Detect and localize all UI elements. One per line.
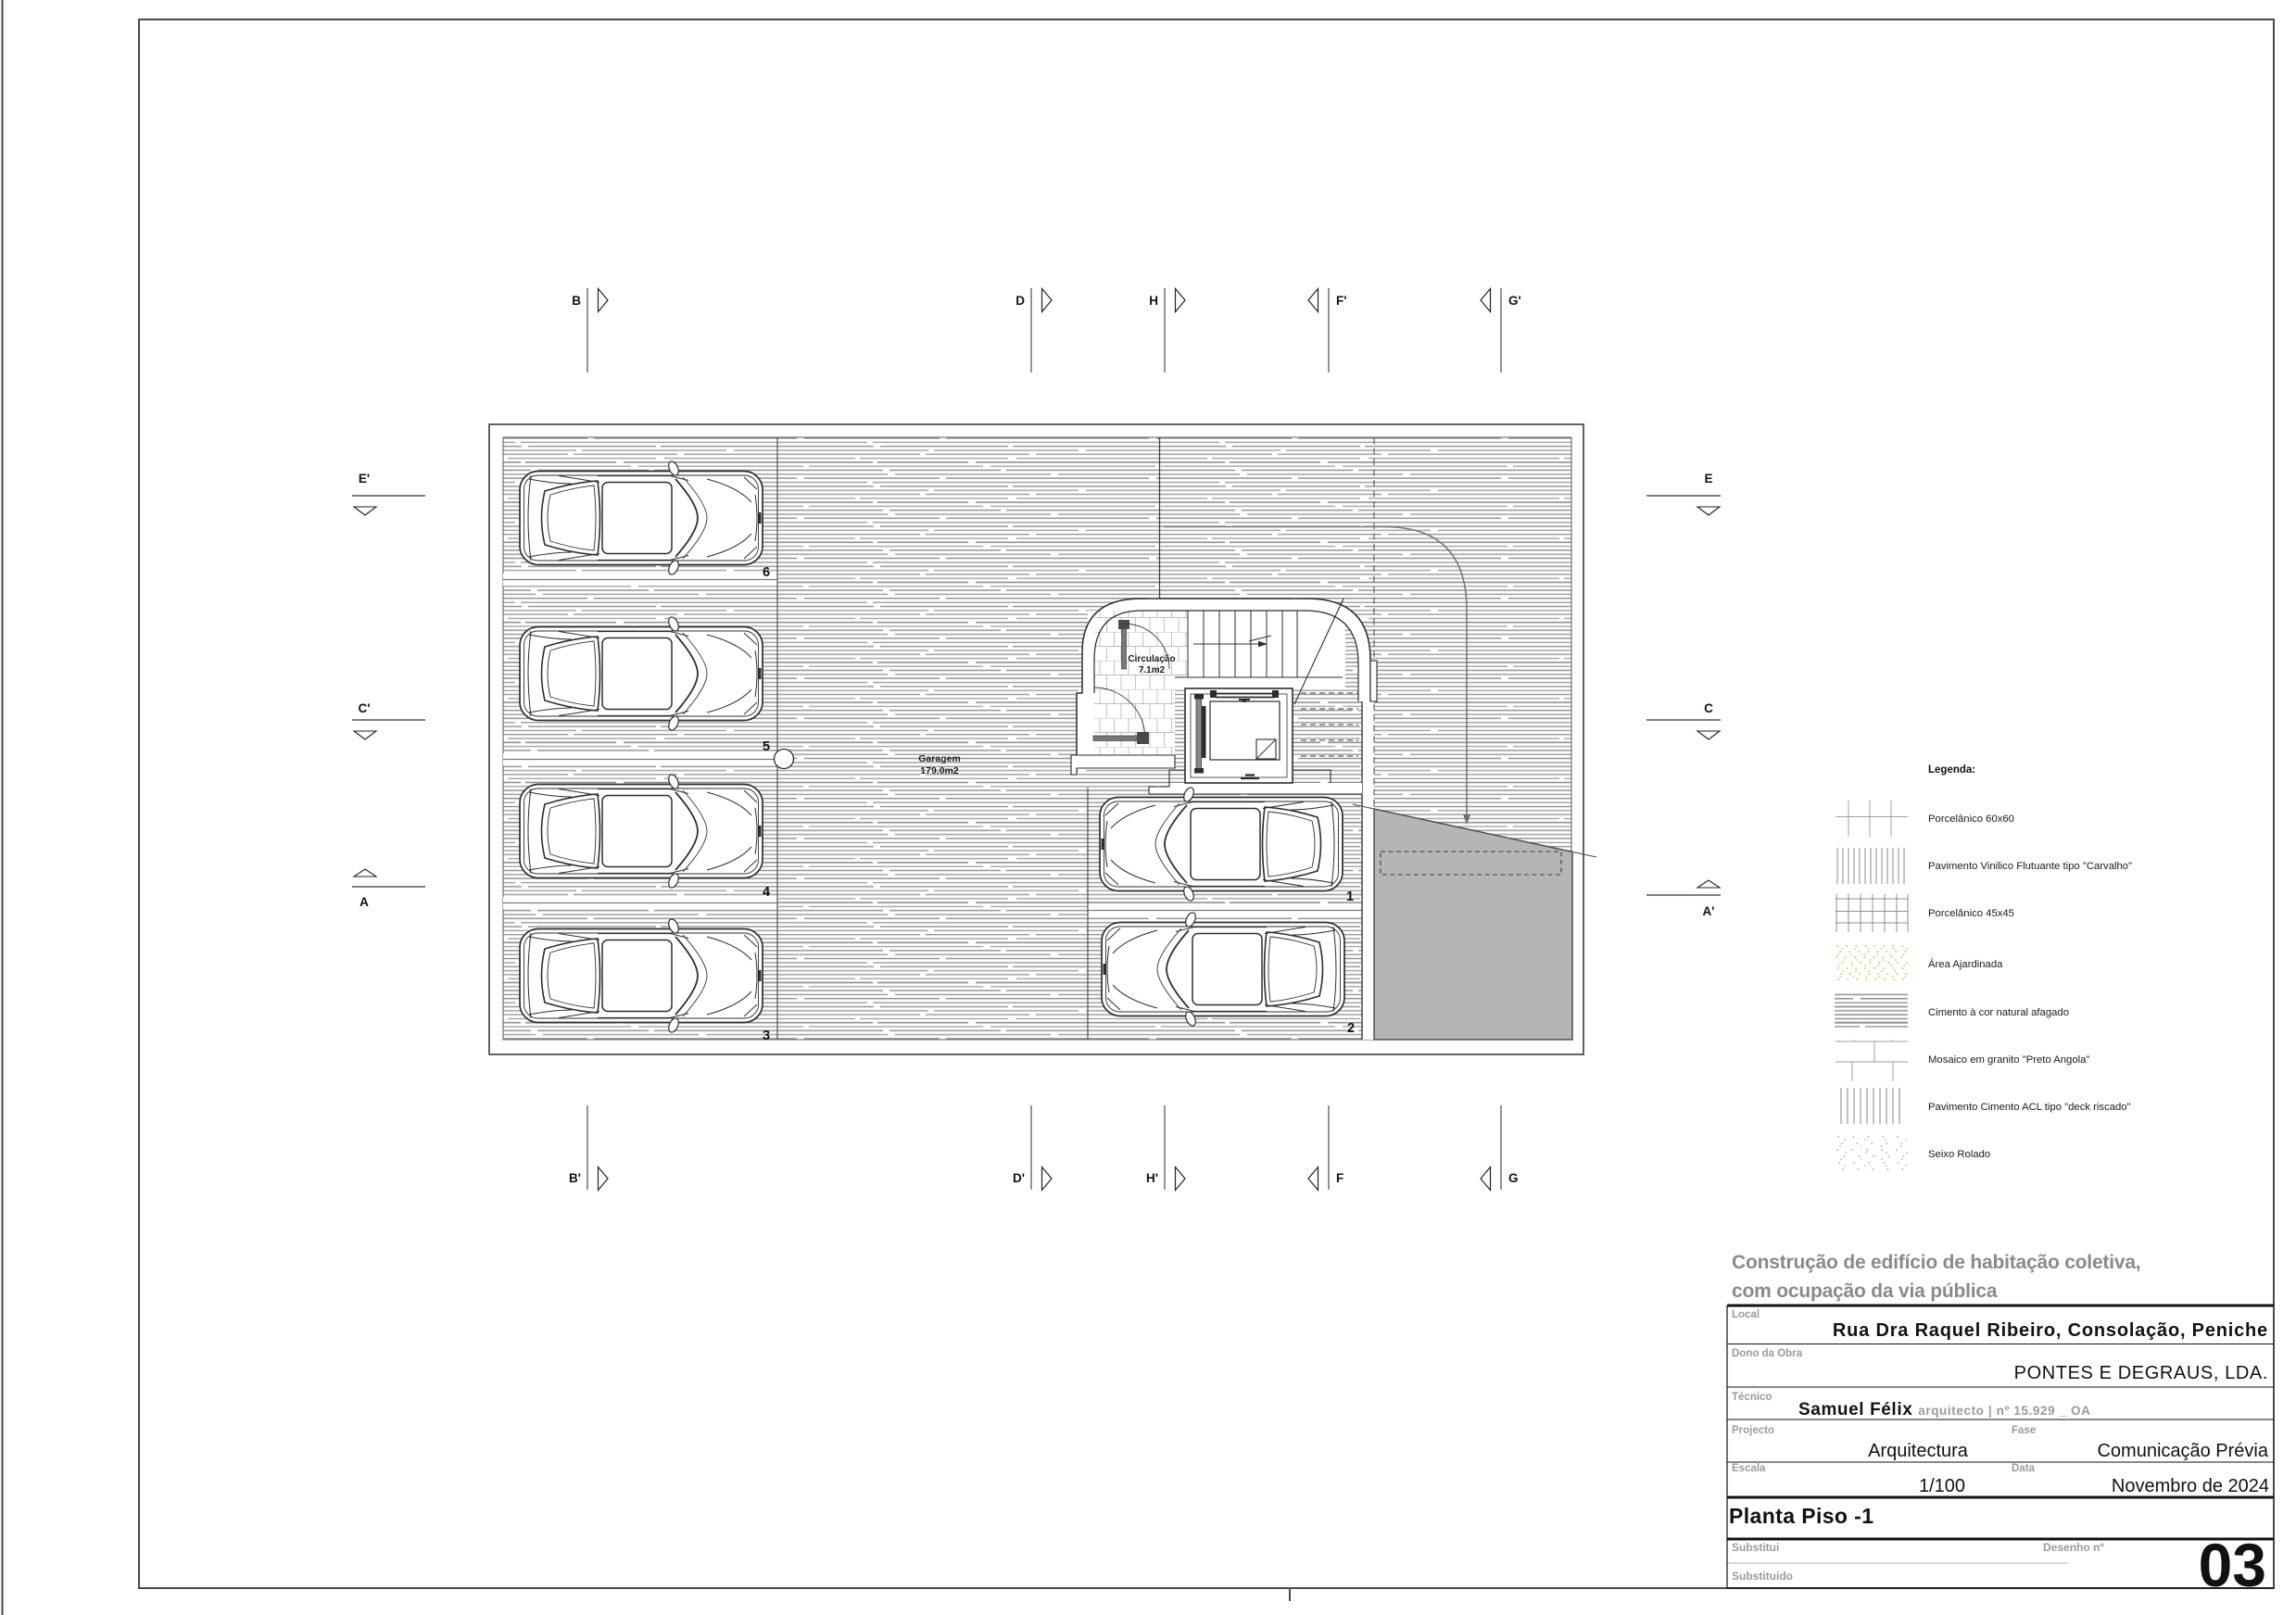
- svg-text:Escala: Escala: [1732, 1463, 1766, 1474]
- svg-text:Dono da Obra: Dono da Obra: [1732, 1348, 1803, 1359]
- svg-text:Samuel Félix arquitecto | nº 1: Samuel Félix arquitecto | nº 15.929 _ OA: [1798, 1400, 2090, 1419]
- svg-text:Data: Data: [2012, 1463, 2036, 1474]
- svg-text:A: A: [360, 895, 369, 909]
- svg-text:6: 6: [763, 565, 770, 580]
- svg-text:H': H': [1146, 1171, 1158, 1185]
- svg-text:C: C: [1704, 701, 1713, 715]
- svg-text:Mosaico em granito "Preto Ango: Mosaico em granito "Preto Angola": [1928, 1054, 2089, 1066]
- svg-text:Seixo Rolado: Seixo Rolado: [1928, 1149, 1990, 1160]
- svg-text:Porcelânico 60x60: Porcelânico 60x60: [1928, 814, 2014, 825]
- svg-text:Pavimento Vinilico Flutuante t: Pavimento Vinilico Flutuante tipo "Carva…: [1928, 861, 2132, 872]
- svg-text:179.0m2: 179.0m2: [920, 765, 959, 776]
- svg-text:1: 1: [1346, 890, 1354, 904]
- svg-text:Desenho nº: Desenho nº: [2043, 1541, 2104, 1554]
- svg-text:F': F': [1336, 294, 1346, 308]
- svg-text:Construção de edifício de habi: Construção de edifício de habitação cole…: [1732, 1252, 2140, 1273]
- svg-text:Substituido: Substituido: [1732, 1570, 1793, 1583]
- svg-text:D: D: [1016, 294, 1025, 308]
- svg-text:Pavimento Cimento ACL tipo "de: Pavimento Cimento ACL tipo "deck riscado…: [1928, 1102, 2131, 1113]
- svg-text:3: 3: [763, 1028, 770, 1043]
- svg-text:G: G: [1508, 1171, 1519, 1185]
- svg-text:Legenda:: Legenda:: [1928, 764, 1975, 776]
- svg-text:7.1m2: 7.1m2: [1139, 665, 1166, 675]
- svg-text:Área Ajardinada: Área Ajardinada: [1928, 958, 2003, 970]
- svg-text:5: 5: [763, 739, 770, 754]
- svg-text:B: B: [572, 294, 581, 308]
- svg-text:Planta Piso -1: Planta Piso -1: [1729, 1504, 1873, 1528]
- svg-text:4: 4: [763, 885, 770, 900]
- svg-text:03: 03: [2199, 1531, 2266, 1599]
- svg-text:Rua Dra Raquel Ribeiro, Consol: Rua Dra Raquel Ribeiro, Consolação, Peni…: [1833, 1320, 2268, 1341]
- svg-text:Local: Local: [1732, 1309, 1760, 1320]
- svg-text:D': D': [1013, 1171, 1025, 1185]
- svg-text:Cimento à cor natural afagado: Cimento à cor natural afagado: [1928, 1007, 2069, 1018]
- svg-text:Técnico: Técnico: [1732, 1392, 1772, 1403]
- svg-text:Novembro de 2024: Novembro de 2024: [2112, 1476, 2269, 1496]
- svg-text:com ocupação da via pública: com ocupação da via pública: [1732, 1281, 1998, 1302]
- svg-text:Arquitectura: Arquitectura: [1868, 1441, 1969, 1461]
- svg-text:C': C': [359, 701, 371, 715]
- svg-text:1/100: 1/100: [1919, 1476, 1965, 1496]
- svg-text:2: 2: [1347, 1021, 1355, 1036]
- svg-text:E': E': [359, 472, 370, 486]
- svg-text:G': G': [1508, 294, 1521, 308]
- svg-text:H: H: [1149, 294, 1158, 308]
- svg-text:Projecto: Projecto: [1732, 1425, 1774, 1436]
- svg-text:Fase: Fase: [2012, 1425, 2036, 1436]
- svg-text:B': B': [569, 1171, 581, 1185]
- svg-text:Comunicação Prévia: Comunicação Prévia: [2097, 1441, 2268, 1461]
- svg-text:E: E: [1704, 472, 1712, 486]
- svg-text:Garagem: Garagem: [918, 753, 961, 764]
- svg-text:Substitui: Substitui: [1732, 1541, 1779, 1554]
- svg-text:Porcelânico 45x45: Porcelânico 45x45: [1928, 908, 2014, 919]
- svg-text:A': A': [1703, 904, 1715, 918]
- svg-text:F: F: [1336, 1171, 1344, 1185]
- svg-text:PONTES E DEGRAUS, LDA.: PONTES E DEGRAUS, LDA.: [2014, 1363, 2268, 1383]
